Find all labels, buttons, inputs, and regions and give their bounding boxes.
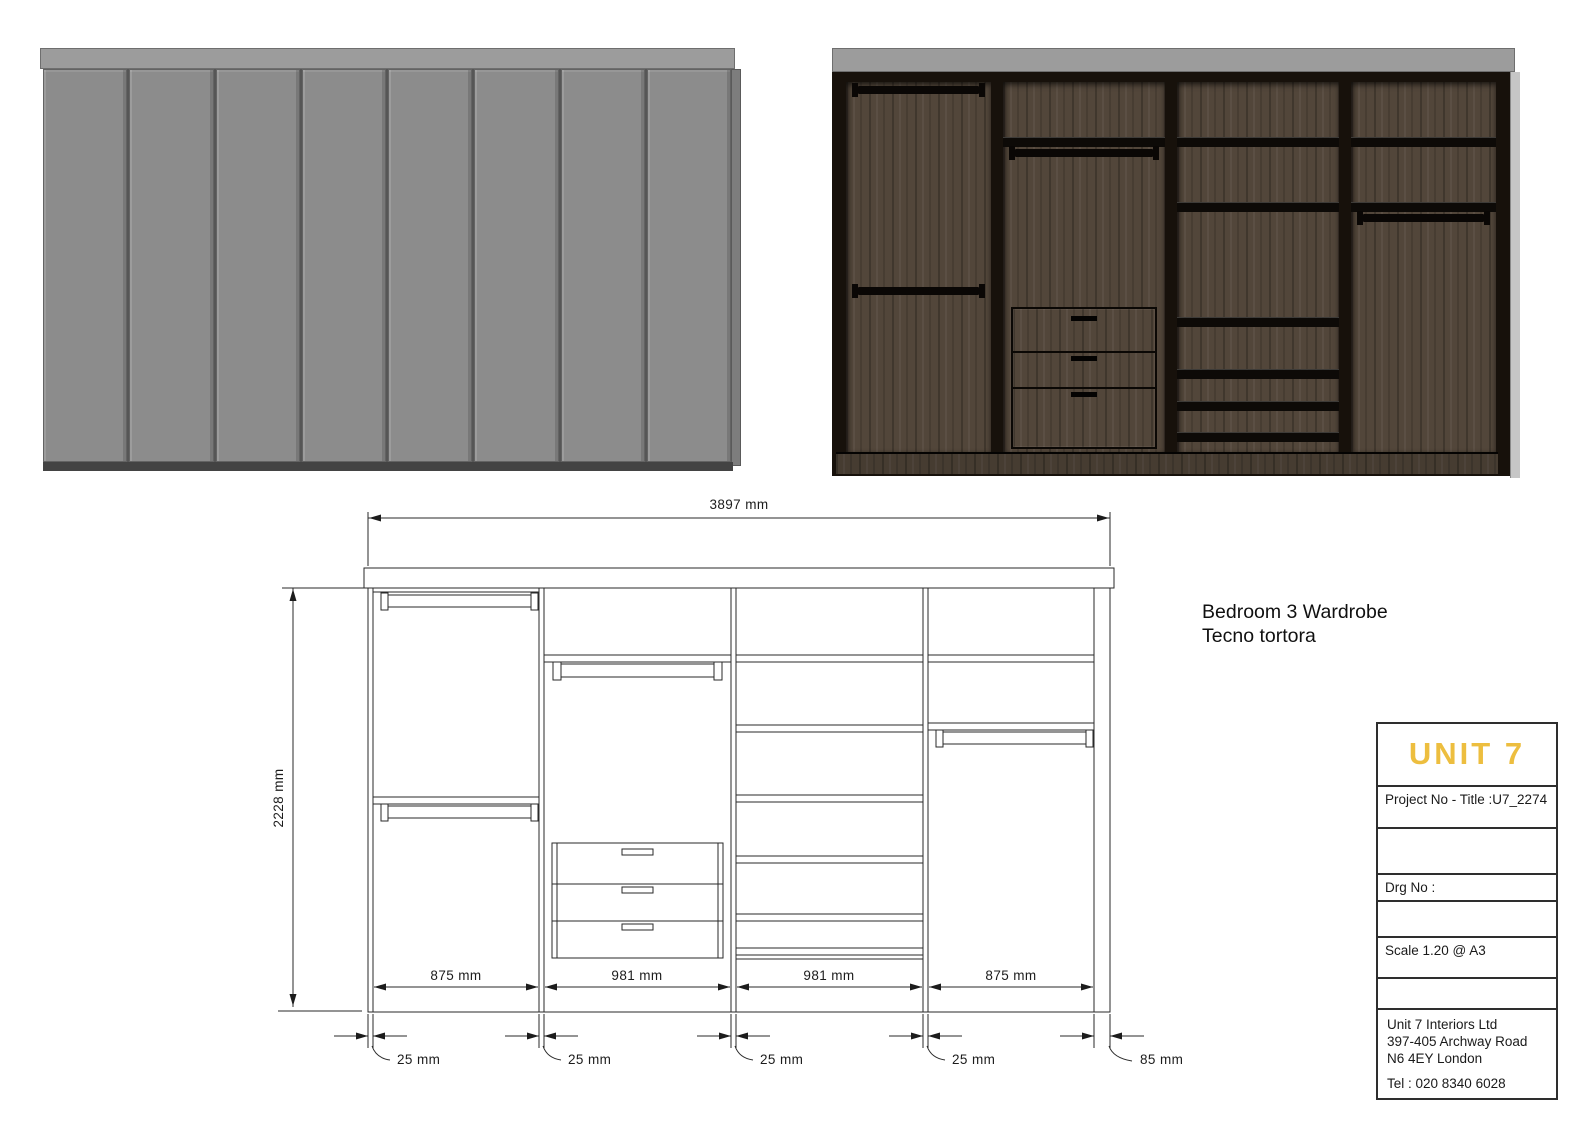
- arrowhead: [369, 515, 381, 522]
- shelf: [736, 948, 923, 955]
- shelf: [544, 655, 731, 662]
- arrowhead: [737, 984, 749, 991]
- drawer-handle: [622, 887, 653, 893]
- shelf: [736, 655, 923, 662]
- title-block: UNIT 7 Project No - Title :U7_2274 Drg N…: [1376, 722, 1558, 1100]
- hanging-rail: [381, 806, 531, 818]
- shelf: [736, 795, 923, 802]
- arrowhead: [544, 1033, 556, 1040]
- partition-2: [731, 588, 736, 1012]
- dim-label-section-1: 875 mm: [430, 968, 481, 983]
- rail-bracket: [714, 662, 722, 680]
- technical-drawing: 3897 mm 2228 mm 875 mm 981 mm 981 mm 875…: [0, 0, 1587, 1122]
- wardrobe-outline: [364, 568, 1114, 1012]
- hanging-rail: [381, 595, 531, 607]
- arrowhead: [356, 1033, 368, 1040]
- shelf: [736, 914, 923, 921]
- dim-label-section-3: 981 mm: [803, 968, 854, 983]
- scale-row: Scale 1.20 @ A3: [1378, 936, 1556, 977]
- annotation-line-2: Tecno tortora: [1202, 624, 1388, 648]
- dim-label-thickness-5: 85 mm: [1140, 1052, 1183, 1067]
- arrowhead: [1082, 1033, 1094, 1040]
- arrowhead: [929, 984, 941, 991]
- partition-1: [539, 588, 544, 1012]
- arrowhead: [290, 589, 297, 601]
- bay-3-fittings: [736, 655, 923, 959]
- dim-label-thickness-2: 25 mm: [568, 1052, 611, 1067]
- rail-bracket: [553, 662, 561, 680]
- drawer-handle: [622, 924, 653, 930]
- drawer-handle: [622, 849, 653, 855]
- hanging-rail: [936, 732, 1086, 744]
- shelf: [736, 856, 923, 863]
- dim-label-thickness-1: 25 mm: [397, 1052, 440, 1067]
- shelf: [373, 797, 539, 804]
- arrowhead: [718, 984, 730, 991]
- top-panel: [364, 568, 1114, 588]
- dim-thicknesses: 25 mm 25 mm 25 mm 25 mm 85 mm: [334, 1014, 1183, 1067]
- rail-bracket: [1086, 730, 1093, 747]
- dim-line: [368, 512, 1110, 566]
- dim-label-total-width: 3897 mm: [709, 497, 768, 512]
- drawer-box: [552, 843, 723, 958]
- rail-bracket: [381, 804, 388, 821]
- address-line-3: N6 4EY London: [1387, 1050, 1547, 1067]
- arrowhead: [527, 1033, 539, 1040]
- address-line-1: Unit 7 Interiors Ltd: [1387, 1016, 1547, 1033]
- arrowhead: [290, 994, 297, 1006]
- annotation-line-1: Bedroom 3 Wardrobe: [1202, 600, 1388, 624]
- title-block-spacer: [1378, 977, 1556, 1008]
- company-logo: UNIT 7: [1378, 724, 1556, 785]
- arrowhead: [928, 1033, 940, 1040]
- dim-lines: [334, 1014, 1144, 1048]
- arrowhead: [373, 1033, 385, 1040]
- dim-total-height: 2228 mm: [271, 588, 366, 1011]
- project-row: Project No - Title :U7_2274: [1378, 785, 1556, 827]
- dim-label-thickness-4: 25 mm: [952, 1052, 995, 1067]
- bay-2-fittings: [544, 655, 731, 958]
- dim-label-thickness-3: 25 mm: [760, 1052, 803, 1067]
- shelf: [928, 723, 1094, 730]
- arrowhead: [911, 1033, 923, 1040]
- arrowhead: [1097, 515, 1109, 522]
- arrowhead: [1110, 1033, 1122, 1040]
- leader-lines: [372, 1046, 1132, 1061]
- dim-line: [278, 588, 366, 1011]
- drawing-annotation: Bedroom 3 Wardrobe Tecno tortora: [1202, 600, 1388, 648]
- rail-bracket: [531, 593, 538, 610]
- dim-total-width: 3897 mm: [368, 497, 1110, 566]
- dim-label-section-4: 875 mm: [985, 968, 1036, 983]
- shelf: [736, 725, 923, 732]
- rail-bracket: [936, 730, 943, 747]
- arrowhead: [526, 984, 538, 991]
- title-block-spacer: [1378, 827, 1556, 873]
- partition-3: [923, 588, 928, 1012]
- address-line-2: 397-405 Archway Road: [1387, 1033, 1547, 1050]
- drg-no-row: Drg No :: [1378, 873, 1556, 900]
- dim-label-total-height: 2228 mm: [271, 768, 286, 827]
- shelf: [928, 655, 1094, 662]
- address-block: Unit 7 Interiors Ltd 397-405 Archway Roa…: [1378, 1008, 1556, 1098]
- arrowhead: [719, 1033, 731, 1040]
- arrowhead: [545, 984, 557, 991]
- left-side-panel: [368, 588, 373, 1012]
- rail-bracket: [531, 804, 538, 821]
- bay-1-fittings: [373, 592, 539, 821]
- rail-bracket: [381, 593, 388, 610]
- title-block-spacer: [1378, 900, 1556, 936]
- arrowhead: [736, 1033, 748, 1040]
- right-side-panel: [1094, 588, 1110, 1012]
- arrowhead: [1081, 984, 1093, 991]
- tel-row: Tel : 020 8340 6028: [1387, 1075, 1547, 1092]
- arrowhead: [374, 984, 386, 991]
- arrowhead: [910, 984, 922, 991]
- bay-4-fittings: [928, 655, 1094, 747]
- hanging-rail: [553, 664, 722, 677]
- dim-label-section-2: 981 mm: [611, 968, 662, 983]
